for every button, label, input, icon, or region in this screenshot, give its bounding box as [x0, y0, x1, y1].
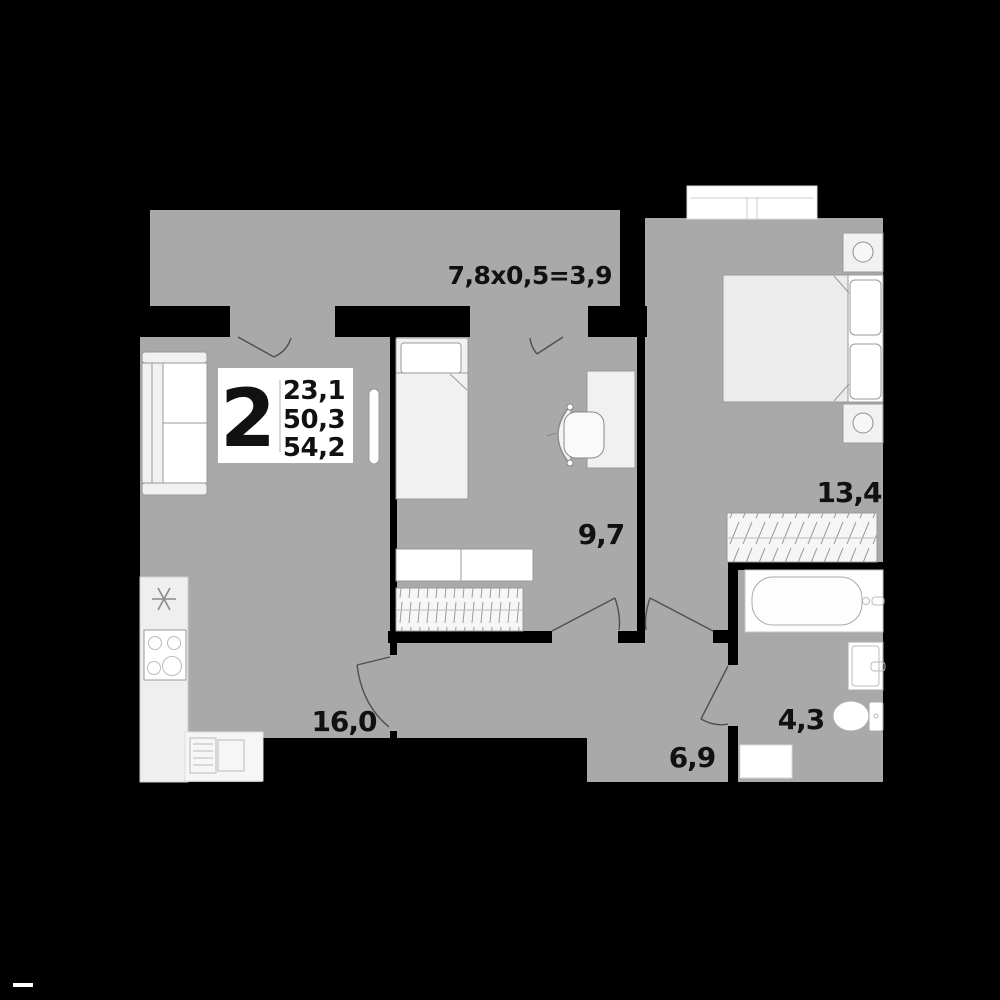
unit-info-badge: 2 23,1 50,3 54,2: [218, 368, 353, 465]
bedroom-small-door-opening: [552, 629, 618, 645]
sofa-armrest-top: [142, 352, 207, 363]
wardrobe-small: [396, 588, 523, 631]
single-bed: [396, 338, 468, 499]
wall-hall-1: [388, 631, 552, 643]
sofa-cushion-1: [163, 363, 207, 423]
bathroom-door-opening: [726, 665, 740, 726]
double-bed: [723, 275, 883, 402]
rooms-count-label: 2: [220, 372, 276, 465]
room-label-bedroom-small: 9,7: [578, 518, 625, 551]
wall-top-1: [130, 306, 230, 337]
bedroom-master-door-opening: [645, 629, 713, 645]
bed-pillow-2: [850, 344, 881, 399]
room-label-hallway: 6,9: [669, 741, 716, 774]
sofa-armrest-bottom: [142, 483, 207, 495]
bed-mattress: [723, 275, 848, 402]
french-balcony: [687, 186, 817, 219]
radiator-icon: [369, 389, 379, 464]
room-label-bedroom-master: 13,4: [816, 476, 882, 509]
wardrobe-master: [727, 513, 877, 562]
bathroom-sink: [848, 642, 885, 690]
room-label-kitchen-living: 16,0: [311, 705, 377, 738]
nightstand-top: [843, 233, 883, 272]
dresser: [396, 549, 533, 581]
apartment-area-label: 50,3: [283, 405, 345, 435]
stove-icon: [144, 630, 186, 680]
wall-top-3: [588, 306, 647, 337]
floor-plan-svg: 2 23,1 50,3 54,2: [0, 0, 1000, 1000]
kitchen-door-opening: [388, 655, 399, 731]
kitchen-cabinet: [185, 732, 263, 781]
sofa-cushion-2: [163, 423, 207, 483]
room-label-bathroom: 4,3: [778, 703, 825, 736]
wall-hall-2: [618, 631, 645, 643]
balcony-area-label: 7,8x0,5=3,9: [448, 261, 612, 290]
toilet: [833, 701, 883, 731]
bedroom-small-window-opening: [470, 304, 588, 338]
floor-plan-canvas: 2 23,1 50,3 54,2: [0, 0, 1000, 1000]
watermark-dash: [13, 983, 33, 987]
total-area-label: 54,2: [283, 433, 345, 463]
bed-pillow: [401, 343, 461, 373]
bathtub: [745, 570, 884, 632]
bed-pillow-1: [850, 280, 881, 335]
wall-hall-3: [713, 631, 728, 643]
living-area-label: 23,1: [283, 376, 345, 406]
balcony-floor: [150, 210, 620, 310]
sofa: [142, 352, 207, 495]
washing-machine: [740, 745, 792, 778]
wall-top-2: [335, 306, 470, 337]
kitchen-balcony-opening: [230, 304, 335, 338]
nightstand-bottom: [843, 404, 883, 443]
